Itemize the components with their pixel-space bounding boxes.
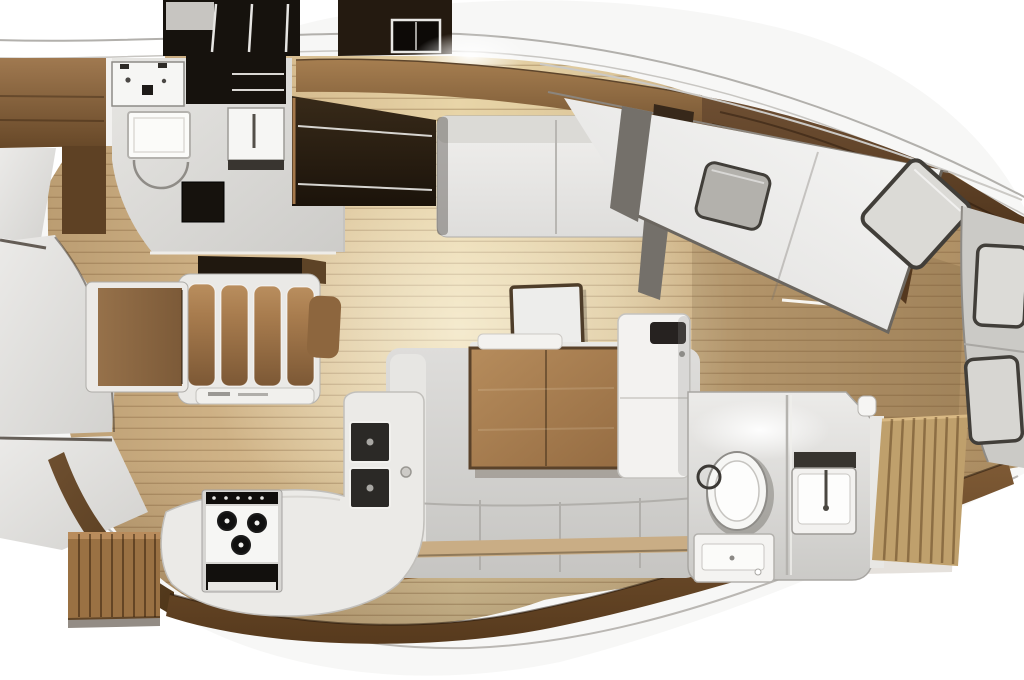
fridge-cabinet bbox=[618, 314, 690, 478]
seat-cushion-strip bbox=[478, 334, 562, 349]
settee-cushion bbox=[221, 285, 248, 386]
vanity-basin bbox=[792, 452, 856, 534]
burner bbox=[218, 512, 236, 530]
arm-cushion bbox=[306, 295, 341, 359]
door-latch bbox=[858, 396, 876, 416]
aft-head bbox=[688, 392, 872, 582]
drawer-unit bbox=[694, 534, 774, 582]
saloon-table bbox=[470, 342, 627, 478]
head-dark-counter bbox=[186, 52, 286, 104]
stern-double-berth bbox=[961, 206, 1024, 468]
pillow bbox=[974, 245, 1024, 328]
settee-cushion bbox=[254, 286, 281, 386]
drawer-handle bbox=[730, 556, 735, 561]
burner bbox=[248, 514, 266, 532]
vanity-with-faucet bbox=[228, 108, 284, 170]
galley-faucet bbox=[401, 467, 411, 477]
slatted-locker bbox=[68, 532, 160, 628]
burner bbox=[232, 536, 250, 554]
settee-cushion bbox=[188, 284, 215, 386]
bow-wardrobe bbox=[62, 146, 106, 234]
knob-band bbox=[206, 492, 278, 504]
stove bbox=[202, 490, 282, 592]
pillow bbox=[965, 356, 1023, 443]
washbasin-unit bbox=[112, 62, 184, 106]
storage-hatch bbox=[182, 182, 224, 222]
dinette-table bbox=[86, 282, 188, 392]
companionway-slats bbox=[872, 416, 968, 566]
bow-seam bbox=[0, 438, 112, 440]
shower-tray bbox=[128, 112, 190, 158]
floorplan-canvas bbox=[0, 0, 1024, 680]
yacht-floorplan-image bbox=[0, 0, 1024, 680]
